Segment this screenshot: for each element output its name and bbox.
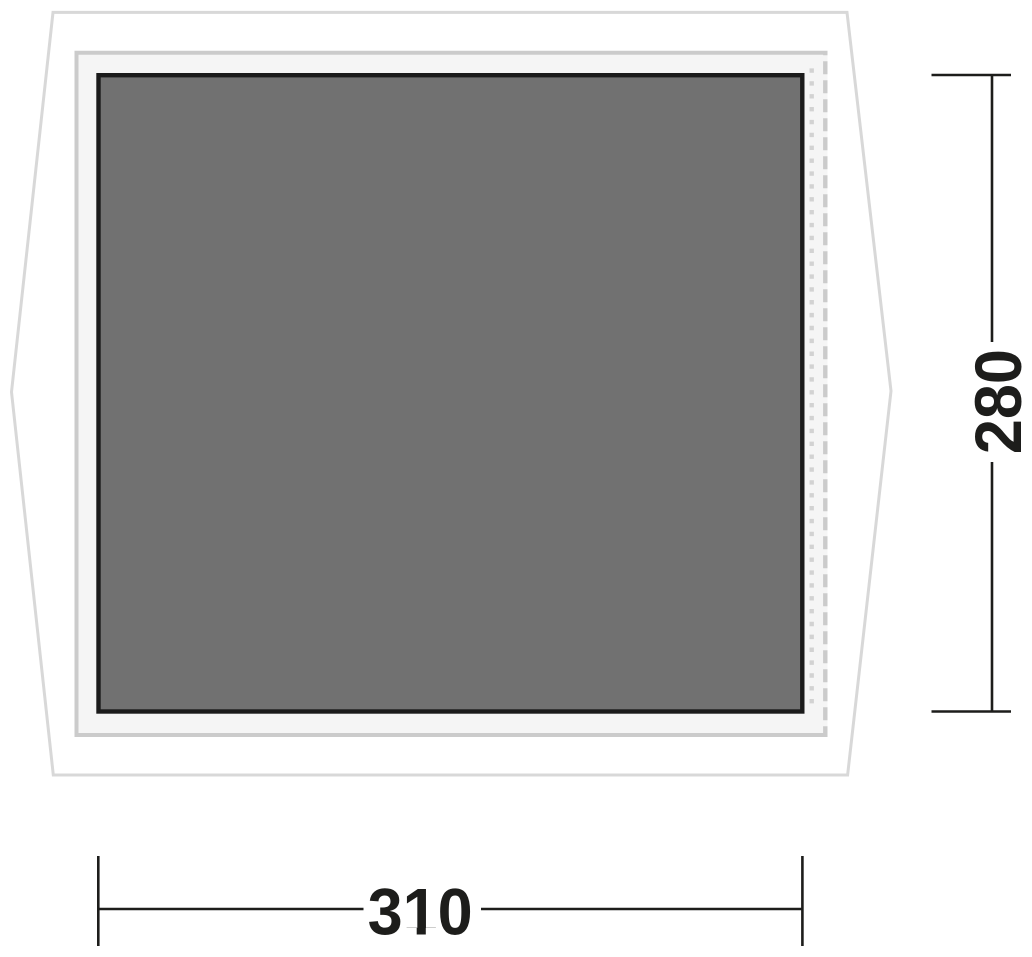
svg-text:310: 310: [368, 874, 473, 949]
svg-text:280: 280: [961, 349, 1032, 454]
